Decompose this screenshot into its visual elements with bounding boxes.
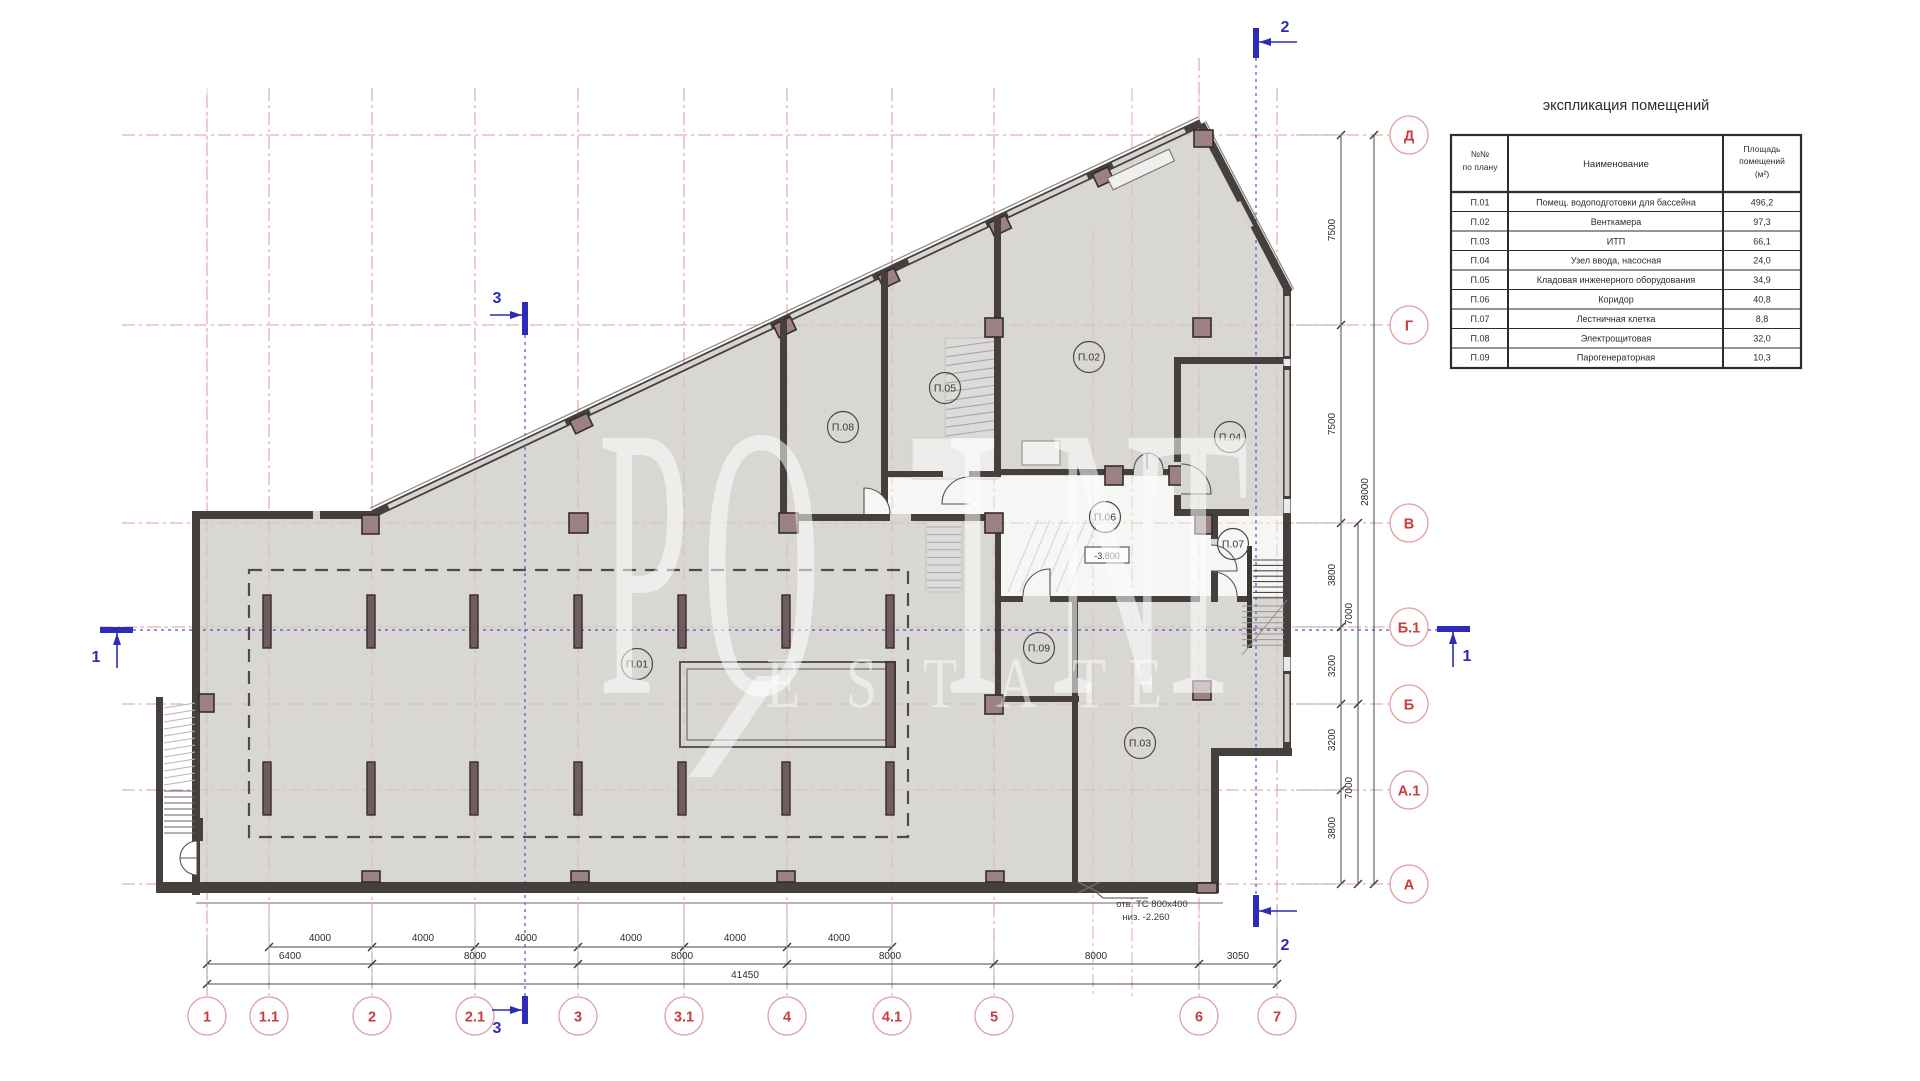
svg-text:низ. -2.260: низ. -2.260 [1122, 912, 1169, 923]
svg-text:8000: 8000 [671, 951, 694, 962]
svg-text:3800: 3800 [1327, 563, 1338, 586]
svg-text:П.07: П.07 [1471, 314, 1490, 324]
svg-text:Электрощитовая: Электрощитовая [1581, 333, 1652, 343]
svg-text:Кладовая инженерного оборудова: Кладовая инженерного оборудования [1537, 275, 1696, 285]
svg-text:T: T [923, 643, 957, 722]
svg-text:T: T [1148, 347, 1249, 778]
svg-text:помещений: помещений [1739, 156, 1785, 166]
svg-text:3: 3 [493, 1020, 502, 1037]
svg-text:3.1: 3.1 [674, 1010, 694, 1026]
svg-text:Б: Б [1404, 698, 1414, 714]
svg-text:экспликация помещений: экспликация помещений [1543, 98, 1710, 114]
svg-text:Парогенераторная: Парогенераторная [1577, 353, 1655, 363]
svg-text:Венткамера: Венткамера [1591, 217, 1641, 227]
svg-text:S: S [846, 643, 877, 722]
svg-text:7000: 7000 [1344, 776, 1355, 799]
svg-text:(м²): (м²) [1755, 169, 1770, 179]
svg-text:8000: 8000 [879, 951, 902, 962]
svg-text:2: 2 [1281, 19, 1290, 36]
svg-text:8000: 8000 [1085, 951, 1108, 962]
svg-text:Узел ввода, насосная: Узел ввода, насосная [1571, 256, 1661, 266]
svg-text:П.06: П.06 [1471, 295, 1490, 305]
svg-text:Наименование: Наименование [1583, 159, 1649, 170]
svg-text:8,8: 8,8 [1756, 314, 1769, 324]
svg-text:7500: 7500 [1327, 218, 1338, 241]
svg-text:A: A [996, 643, 1036, 722]
svg-text:1.1: 1.1 [259, 1010, 279, 1026]
svg-text:34,9: 34,9 [1753, 275, 1771, 285]
svg-text:8000: 8000 [464, 951, 487, 962]
svg-text:Площадь: Площадь [1743, 144, 1781, 154]
svg-text:Коридор: Коридор [1598, 295, 1634, 305]
svg-text:P: P [598, 347, 690, 778]
svg-text:В: В [1404, 517, 1414, 533]
svg-text:3200: 3200 [1327, 654, 1338, 677]
svg-text:отв. ТС 800х400: отв. ТС 800х400 [1116, 899, 1188, 910]
svg-text:П.04: П.04 [1471, 256, 1490, 266]
svg-text:24,0: 24,0 [1753, 256, 1771, 266]
svg-text:Помещ. водоподготовки для басс: Помещ. водоподготовки для бассейна [1536, 198, 1696, 208]
svg-text:4000: 4000 [724, 933, 747, 944]
svg-text:1: 1 [203, 1010, 211, 1026]
svg-text:3: 3 [574, 1010, 582, 1026]
svg-text:7500: 7500 [1327, 412, 1338, 435]
svg-text:41450: 41450 [731, 970, 759, 981]
svg-text:7000: 7000 [1344, 602, 1355, 625]
svg-text:Лестничная клетка: Лестничная клетка [1577, 314, 1656, 324]
svg-text:5: 5 [990, 1010, 998, 1026]
svg-text:3050: 3050 [1227, 951, 1250, 962]
svg-text:32,0: 32,0 [1753, 333, 1771, 343]
svg-text:4000: 4000 [828, 933, 851, 944]
svg-text:496,2: 496,2 [1751, 198, 1774, 208]
svg-text:4.1: 4.1 [882, 1010, 902, 1026]
svg-text:1: 1 [1463, 648, 1472, 665]
svg-text:6: 6 [1195, 1010, 1203, 1026]
svg-text:Д: Д [1404, 129, 1415, 145]
svg-text:А.1: А.1 [1398, 784, 1421, 800]
svg-text:4000: 4000 [515, 933, 538, 944]
svg-text:П.01: П.01 [1471, 198, 1490, 208]
svg-text:10,3: 10,3 [1753, 353, 1771, 363]
svg-text:4000: 4000 [309, 933, 332, 944]
svg-text:4: 4 [783, 1010, 791, 1026]
svg-text:3: 3 [493, 290, 502, 307]
svg-text:T: T [1072, 643, 1106, 722]
svg-text:4000: 4000 [620, 933, 643, 944]
svg-text:П.02: П.02 [1471, 217, 1490, 227]
svg-text:O: O [702, 347, 821, 778]
svg-text:по плану: по плану [1463, 162, 1499, 172]
svg-text:97,3: 97,3 [1753, 217, 1771, 227]
svg-text:6400: 6400 [279, 951, 302, 962]
svg-text:66,1: 66,1 [1753, 236, 1771, 246]
svg-text:П.05: П.05 [1471, 275, 1490, 285]
svg-text:2: 2 [1281, 937, 1290, 954]
svg-text:№№: №№ [1471, 149, 1489, 159]
svg-text:1: 1 [92, 649, 101, 666]
svg-text:28000: 28000 [1360, 478, 1371, 506]
svg-text:E: E [1128, 643, 1162, 722]
svg-text:А: А [1404, 878, 1415, 894]
svg-text:ИТП: ИТП [1607, 236, 1625, 246]
svg-text:П.03: П.03 [1471, 236, 1490, 246]
svg-text:3800: 3800 [1327, 816, 1338, 839]
svg-text:Г: Г [1405, 319, 1413, 335]
svg-text:40,8: 40,8 [1753, 295, 1771, 305]
svg-text:П.08: П.08 [832, 422, 854, 434]
svg-text:2: 2 [368, 1010, 376, 1026]
svg-text:2.1: 2.1 [465, 1010, 485, 1026]
svg-text:7: 7 [1273, 1010, 1281, 1026]
svg-text:Б.1: Б.1 [1398, 621, 1421, 637]
svg-text:П.09: П.09 [1471, 353, 1490, 363]
svg-text:П.08: П.08 [1471, 333, 1490, 343]
svg-text:4000: 4000 [412, 933, 435, 944]
svg-text:3200: 3200 [1327, 728, 1338, 751]
